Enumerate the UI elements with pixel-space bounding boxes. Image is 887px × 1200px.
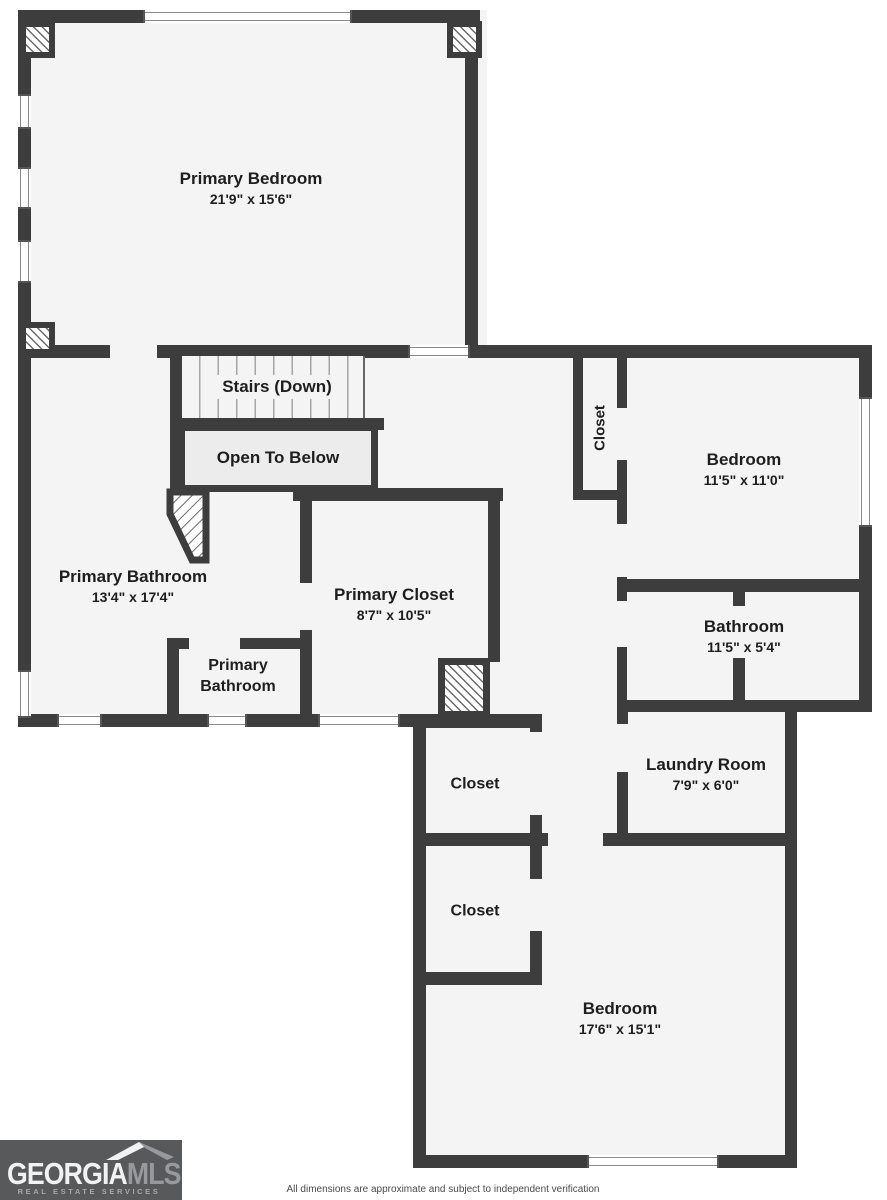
wall-segment [530,815,542,845]
room-name: Laundry Room [646,754,766,776]
room-label-primary-bedroom: Primary Bedroom 21'9" x 15'6" [180,168,323,208]
room-dims: 7'9" x 6'0" [646,776,766,794]
wall-segment [617,772,628,834]
room-name: Bedroom [704,449,785,471]
room-label-primary-bathroom: Primary Bathroom 13'4" x 17'4" [59,566,207,606]
floor-area-upper-right [465,347,872,712]
wall-segment [573,490,627,500]
room-label-primary-bathroom-small: Primary Bathroom [178,656,298,698]
wall-post [438,658,490,718]
wall-post [447,21,482,58]
room-label-stairs: Stairs (Down) [215,375,339,399]
wall-segment [240,638,312,649]
interior-window [408,345,470,358]
logo-georgia: GEORGIA [7,1156,127,1191]
window [143,10,352,23]
wall-segment [603,833,797,846]
wall-post [20,322,55,355]
wall-segment [300,488,312,583]
wall-segment [413,714,426,1168]
room-dims: 21'9" x 15'6" [180,190,323,208]
wall-segment [627,579,860,592]
wall-segment [465,345,872,358]
room-name: Primary Bathroom [59,566,207,588]
room-dims: 11'5" x 5'4" [704,638,784,656]
wall-post [20,21,55,58]
wall-segment [530,714,542,732]
room-name: Bedroom [579,998,661,1020]
wall-segment [465,10,478,358]
wall-segment [617,647,627,702]
room-name: Primary Bedroom [180,168,323,190]
room-name: Primary Bathroom [178,656,298,698]
room-name: Closet [451,902,500,923]
room-name: Closet [451,775,500,796]
room-name: Primary Closet [334,584,454,606]
room-label-bedroom-bottom: Bedroom 17'6" x 15'1" [579,998,661,1038]
wall-segment [413,972,542,985]
room-dims: 17'6" x 15'1" [579,1020,661,1038]
room-name: Stairs (Down) [222,376,332,398]
room-label-open-to-below: Open To Below [217,447,339,469]
window [207,714,247,727]
wall-segment [573,355,583,500]
room-name: Open To Below [217,447,339,469]
wall-segment [733,658,745,702]
disclaimer-text: All dimensions are approximate and subje… [287,1184,600,1195]
window [318,714,400,727]
window [18,670,31,718]
window [18,167,31,209]
window [18,94,31,129]
window [18,240,31,283]
georgia-mls-logo: GEORGIAMLS REAL ESTATE SERVICES [0,1140,182,1200]
wall-segment [617,577,627,601]
wall-segment [530,845,542,879]
wall-segment [413,833,548,846]
logo-mls: MLS [127,1156,181,1191]
floorplan-page: Primary Bedroom 21'9" x 15'6" Stairs (Do… [0,0,887,1200]
window [57,714,102,727]
wall-segment [167,638,189,649]
room-name: Closet [590,405,610,451]
room-label-laundry: Laundry Room 7'9" x 6'0" [646,754,766,794]
wall-segment [617,712,628,724]
room-label-bedroom-right: Bedroom 11'5" x 11'0" [704,449,785,489]
wall-segment [733,592,745,606]
room-label-closet-a: Closet [451,775,500,796]
room-name: Bathroom [704,616,784,638]
wall-segment [785,712,797,1168]
room-label-bathroom: Bathroom 11'5" x 5'4" [704,616,784,656]
room-dims: 11'5" x 11'0" [704,471,785,489]
wall-segment [488,501,500,662]
room-dims: 13'4" x 17'4" [59,588,207,606]
window [587,1155,719,1168]
room-label-closet-b: Closet [451,902,500,923]
room-dims: 8'7" x 10'5" [334,606,454,624]
logo-tagline: REAL ESTATE SERVICES [0,1187,178,1196]
wall-segment [617,355,627,408]
window [859,397,872,527]
diagonal-wall [165,488,213,568]
room-label-closet-hall: Closet [590,405,610,451]
room-label-primary-closet: Primary Closet 8'7" x 10'5" [334,584,454,624]
